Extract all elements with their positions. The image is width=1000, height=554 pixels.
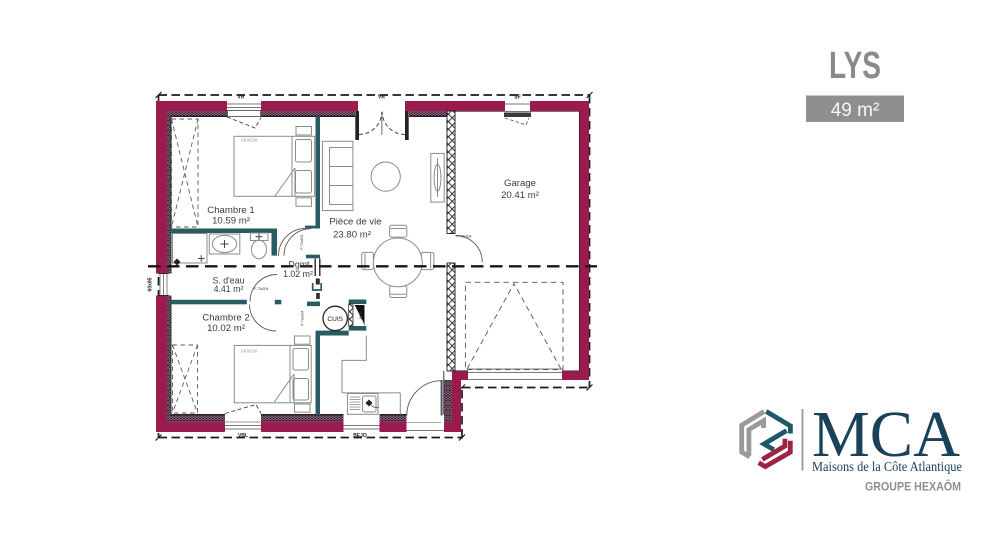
svg-text:1.02 m²: 1.02 m² <box>283 269 313 279</box>
svg-text:Pièce de vie: Pièce de vie <box>329 217 381 228</box>
svg-text:SF: SF <box>514 95 520 101</box>
svg-text:Chambre 1: Chambre 1 <box>207 205 254 216</box>
svg-text:23.80 m²: 23.80 m² <box>333 230 372 241</box>
svg-text:20.41 m²: 20.41 m² <box>501 190 540 201</box>
svg-text:Maisons de la Côte Atlantique: Maisons de la Côte Atlantique <box>812 460 962 475</box>
svg-text:4.41 m²: 4.41 m² <box>214 284 244 294</box>
svg-text:BEJO: BEJO <box>353 433 367 439</box>
svg-text:Dgmt: Dgmt <box>288 260 310 270</box>
svg-text:VBL: VBL <box>238 433 248 439</box>
svg-text:10.59 m²: 10.59 m² <box>212 216 251 227</box>
svg-text:GROUPE HEXAÔM: GROUPE HEXAÔM <box>865 481 961 494</box>
svg-text:P 73x204: P 73x204 <box>456 235 471 239</box>
svg-text:Garage: Garage <box>504 178 536 189</box>
svg-text:BOIL: BOIL <box>359 311 363 319</box>
svg-text:140X200: 140X200 <box>241 349 258 354</box>
svg-text:CUIS: CUIS <box>327 316 343 323</box>
svg-text:VR: VR <box>238 95 245 101</box>
svg-text:LYS: LYS <box>829 45 881 87</box>
svg-text:140X200: 140X200 <box>241 138 258 143</box>
svg-text:10.02 m²: 10.02 m² <box>207 323 246 334</box>
svg-text:60x95: 60x95 <box>148 277 154 291</box>
svg-text:Chambre 2: Chambre 2 <box>202 313 249 324</box>
svg-text:49 m²: 49 m² <box>831 100 880 121</box>
svg-text:P 73x204: P 73x204 <box>301 310 305 325</box>
svg-text:P 73x204: P 73x204 <box>253 287 268 291</box>
svg-text:VR: VR <box>378 95 385 101</box>
svg-text:P 72x204: P 72x204 <box>300 234 304 249</box>
